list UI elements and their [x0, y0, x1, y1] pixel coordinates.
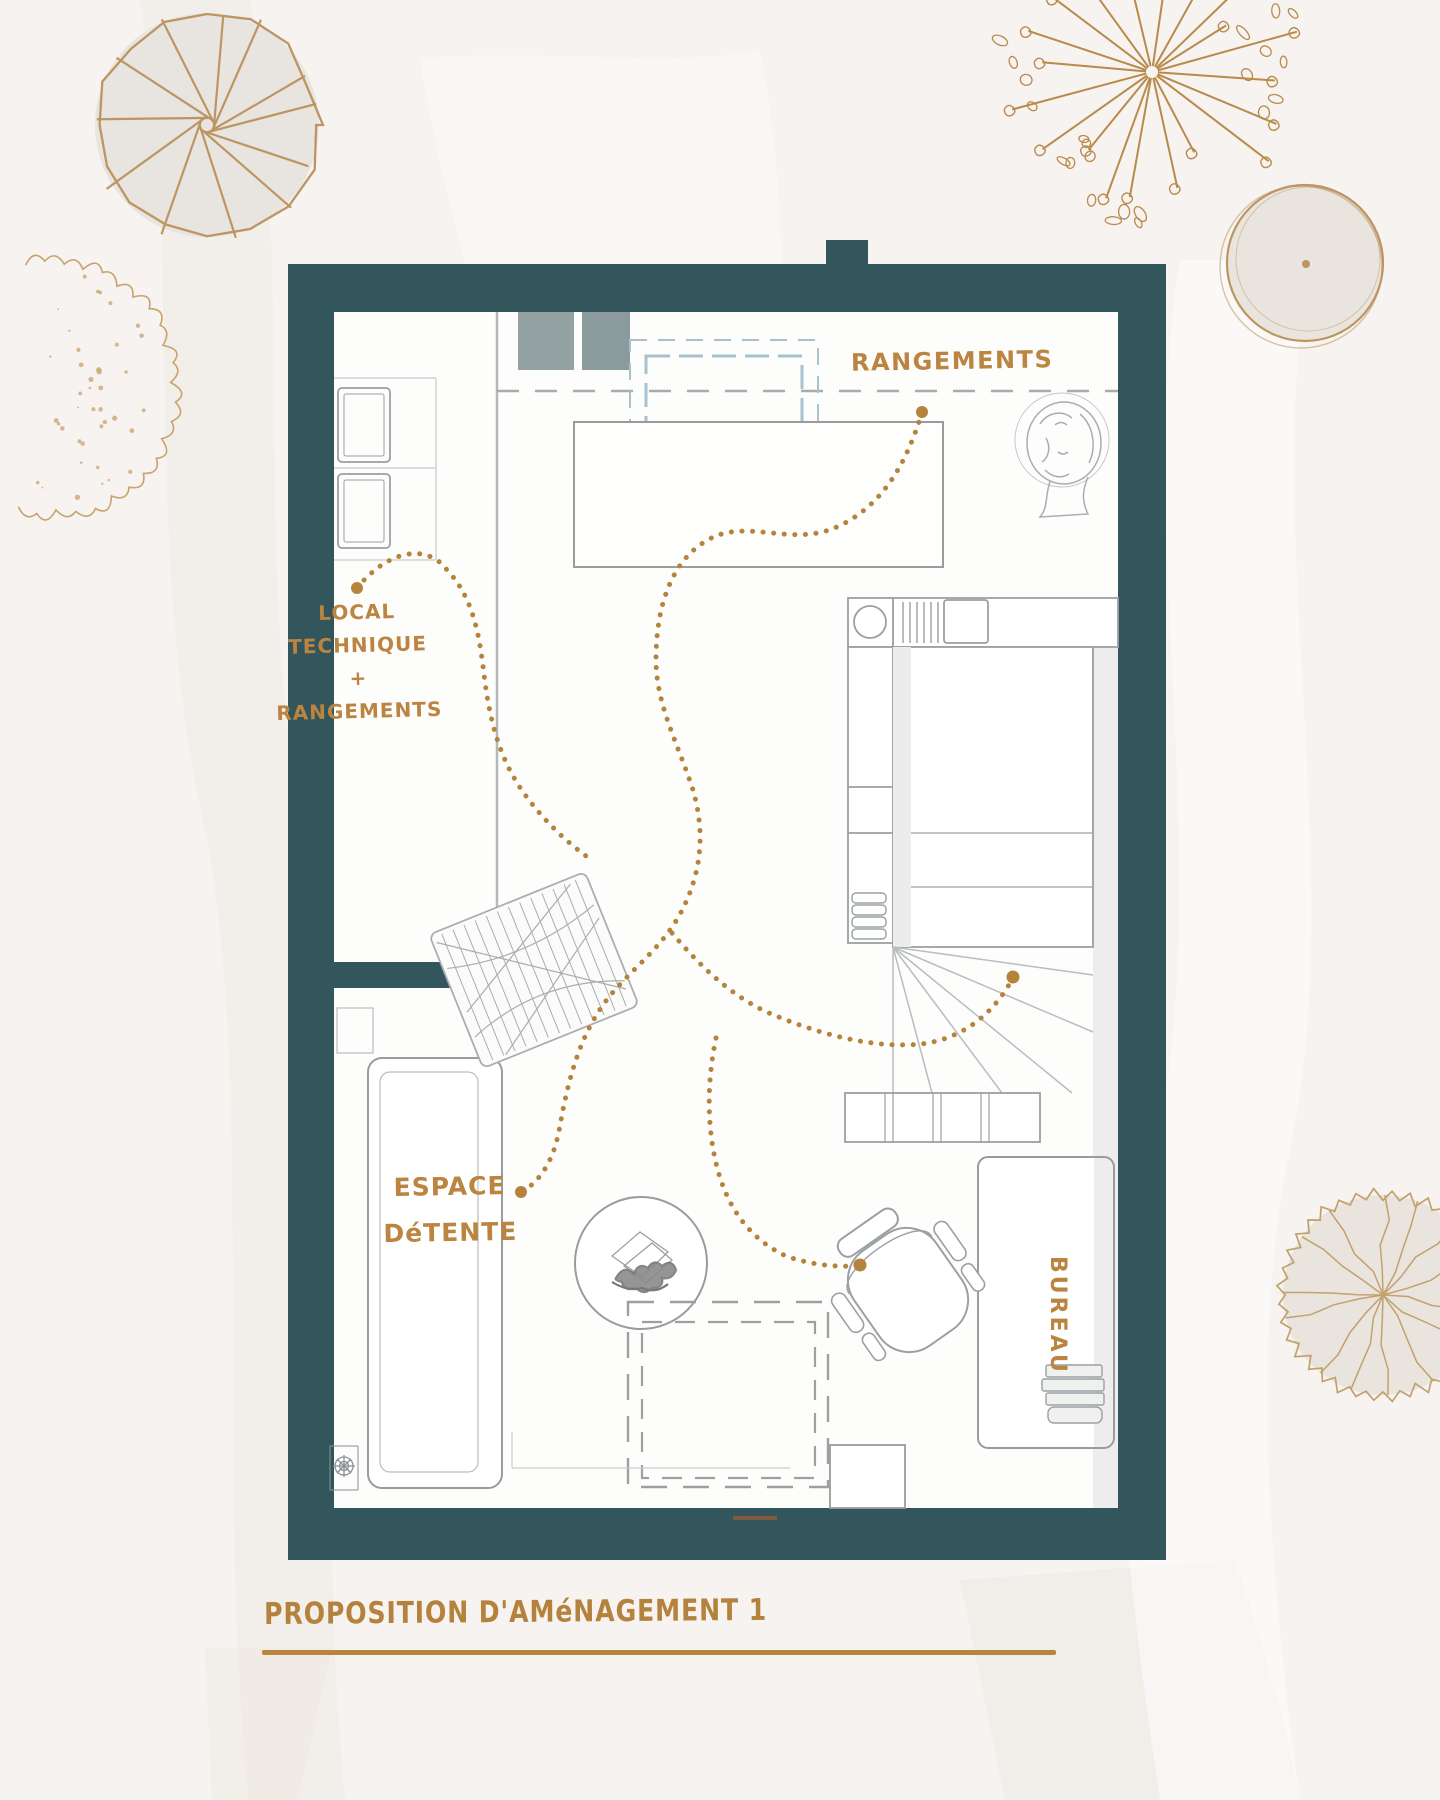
label-rangements: RANGEMENTS [851, 345, 1054, 377]
bush-sketch-left [18, 255, 181, 520]
coffee-table [575, 1197, 707, 1329]
label-local-line2: TECHNIQUE [288, 627, 428, 664]
tree-bottom-right [1277, 1189, 1440, 1402]
label-local-line3: + [349, 662, 368, 695]
appliance-block-1 [518, 312, 574, 370]
side-table [830, 1445, 905, 1508]
tree-top-left [95, 13, 323, 238]
page: RANGEMENTS LOCAL TECHNIQUE + RANGEMENTS … [0, 0, 1440, 1800]
appliance-block-2 [582, 312, 630, 370]
label-espace-line2: DéTENTE [383, 1209, 518, 1257]
label-local-technique: LOCAL TECHNIQUE + RANGEMENTS [286, 594, 429, 730]
label-local-line1: LOCAL [318, 595, 396, 630]
dining-table [574, 422, 943, 567]
tree-top-right-dandelion [991, 0, 1300, 229]
shelf-row [845, 1093, 1040, 1142]
label-espace-detente: ESPACE DéTENTE [379, 1163, 521, 1257]
floor-plan-scene [0, 0, 1440, 1800]
label-bureau: BUREAU [1045, 1256, 1070, 1375]
page-title: PROPOSITION D'AMéNAGEMENT 1 [264, 1593, 767, 1632]
label-local-line4: RANGEMENTS [276, 693, 443, 730]
sofa [368, 1058, 502, 1488]
bed [893, 647, 1093, 947]
title-underline [262, 1650, 1056, 1655]
door-marker [733, 1516, 777, 1520]
label-espace-line1: ESPACE [393, 1163, 506, 1211]
